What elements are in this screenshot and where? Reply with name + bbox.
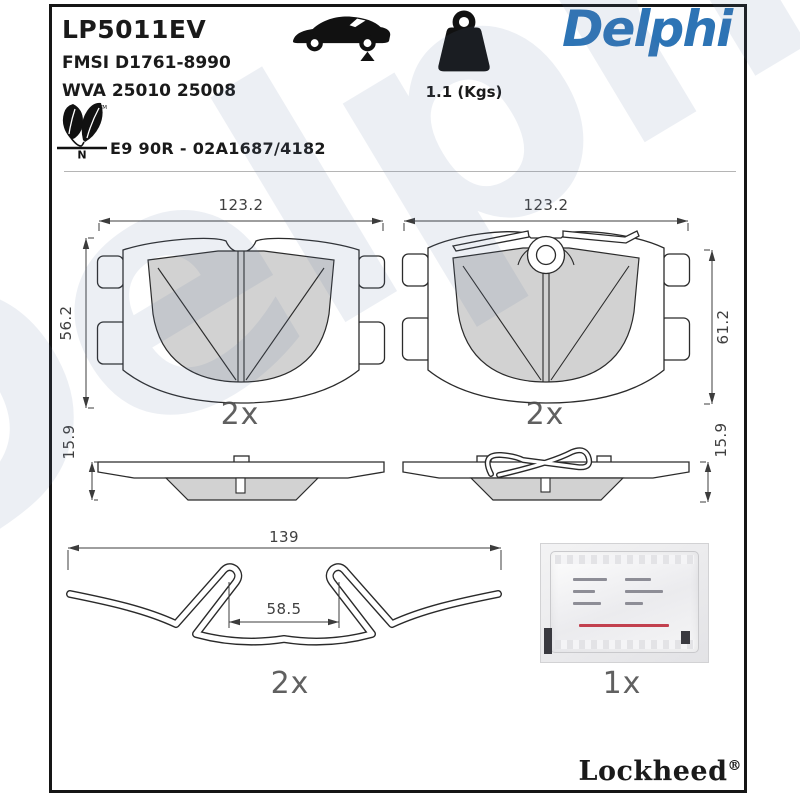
pad-left-ear-top-left bbox=[98, 256, 124, 288]
svg-text:123.2: 123.2 bbox=[219, 197, 264, 214]
side-left-slot bbox=[236, 478, 245, 493]
sachet-label-line bbox=[573, 602, 601, 605]
registered-mark: ® bbox=[728, 758, 743, 774]
pad-left-ear-top-right bbox=[359, 256, 385, 288]
wva-reference: WVA 25010 25008 bbox=[62, 81, 236, 101]
qty-sachet: 1x bbox=[582, 666, 662, 701]
dim-thickness-side-right: 15.9 bbox=[700, 418, 736, 512]
sachet-label-line bbox=[625, 602, 643, 605]
pad-right-ear-top-right bbox=[664, 254, 690, 286]
eco-trademark: TM bbox=[98, 105, 107, 111]
spec-sheet: Delphi LP5011EV FMSI D1761-8990 WVA 2501… bbox=[0, 0, 800, 800]
qty-pad-left: 2x bbox=[200, 397, 280, 432]
sachet-label-line bbox=[625, 590, 663, 593]
svg-text:56.2: 56.2 bbox=[60, 306, 75, 341]
pad-right-ear-top-left bbox=[403, 254, 429, 286]
grease-sachet-photo bbox=[540, 543, 709, 663]
sachet-print-mark bbox=[681, 631, 690, 644]
sachet-warning-line bbox=[579, 624, 669, 627]
weight-value: 1.1 (Kgs) bbox=[404, 83, 524, 101]
dim-thickness-side-left: 15.9 bbox=[62, 420, 98, 512]
sachet-crimp-top bbox=[555, 555, 694, 564]
lockheed-wordmark: Lockheed bbox=[578, 756, 727, 787]
pad-side-right-drawing bbox=[401, 446, 691, 504]
sachet-label-line bbox=[573, 578, 607, 581]
svg-text:15.9: 15.9 bbox=[712, 423, 730, 458]
header-divider bbox=[64, 171, 736, 172]
eco-mark-letter: N bbox=[77, 149, 86, 160]
svg-text:123.2: 123.2 bbox=[524, 197, 569, 214]
fmsi-reference: FMSI D1761-8990 bbox=[62, 53, 231, 73]
dim-width-pad-left: 123.2 bbox=[95, 197, 387, 231]
side-right-slot bbox=[541, 478, 550, 492]
sachet-label-line bbox=[573, 590, 595, 593]
svg-text:61.2: 61.2 bbox=[714, 310, 732, 345]
car-icon bbox=[291, 12, 393, 62]
eco-leaf-icon: N TM bbox=[56, 101, 108, 159]
sachet-pack bbox=[550, 551, 699, 653]
qty-clip: 2x bbox=[245, 666, 335, 701]
dim-height-pad-left: 56.2 bbox=[60, 232, 94, 414]
weight-icon bbox=[432, 8, 496, 78]
pad-front-left-drawing bbox=[96, 232, 386, 412]
pad-front-right-drawing bbox=[401, 218, 691, 418]
qty-pad-right: 2x bbox=[505, 397, 585, 432]
svg-text:15.9: 15.9 bbox=[62, 425, 78, 460]
svg-text:139: 139 bbox=[269, 530, 299, 546]
sachet-shadow-mark bbox=[544, 628, 552, 654]
brand-logo: Delphi bbox=[562, 2, 731, 57]
sachet-label-line bbox=[625, 578, 651, 581]
dim-height-pad-right: 61.2 bbox=[704, 246, 738, 408]
side-left-backplate bbox=[98, 462, 384, 478]
sachet-crimp-bottom bbox=[555, 640, 694, 649]
svg-text:58.5: 58.5 bbox=[267, 600, 302, 618]
lockheed-logo: Lockheed® bbox=[560, 756, 742, 787]
part-number: LP5011EV bbox=[62, 15, 206, 44]
spring-clip-drawing: 139 58.5 bbox=[62, 530, 507, 670]
approval-number: E9 90R - 02A1687/4182 bbox=[110, 139, 326, 158]
pad-side-left-drawing bbox=[96, 452, 386, 504]
rear-axle-marker-icon bbox=[360, 52, 374, 61]
